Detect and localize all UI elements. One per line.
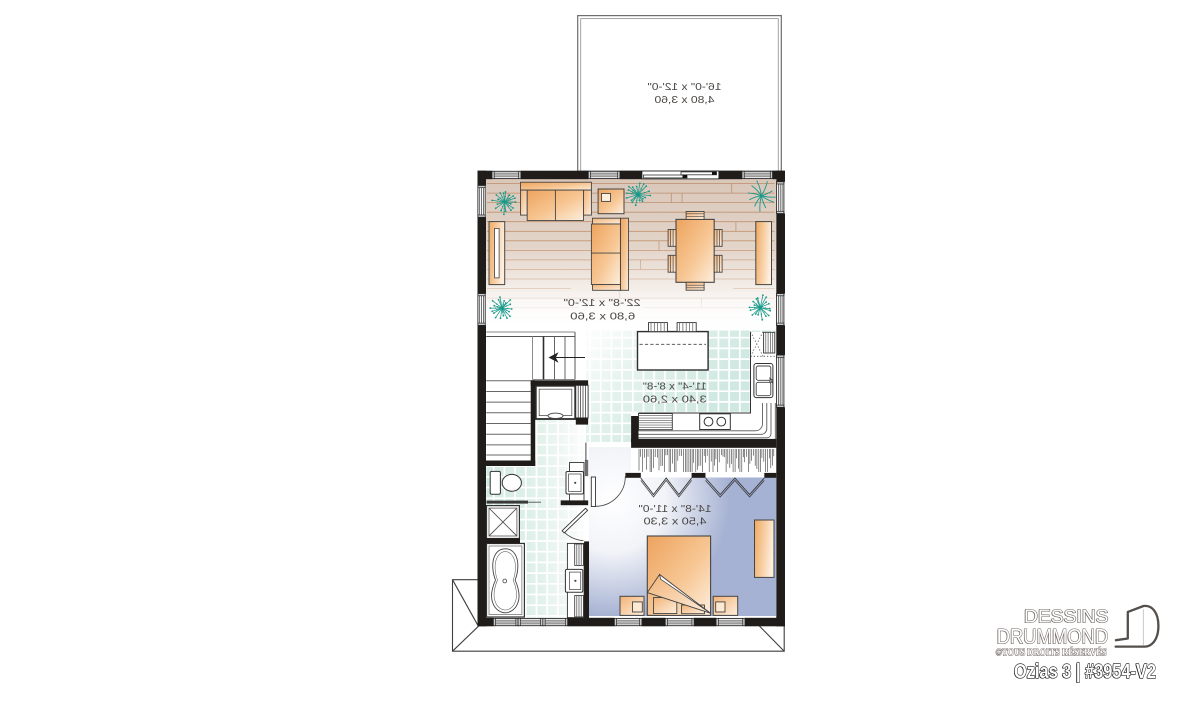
svg-text:Ozias 3 | #3954-V2: Ozias 3 | #3954-V2 [1014, 661, 1156, 683]
svg-text:6,80 x 3,60: 6,80 x 3,60 [570, 311, 635, 322]
svg-text:3,40 x 2,60: 3,40 x 2,60 [642, 395, 706, 406]
svg-text:DRUMMOND: DRUMMOND [997, 624, 1109, 648]
svg-text:©TOUS DROITS RÉSERVÉS: ©TOUS DROITS RÉSERVÉS [996, 647, 1107, 659]
svg-text:22'-8" x 12'-0": 22'-8" x 12'-0" [563, 298, 640, 309]
svg-text:14'-8" x 11'-0": 14'-8" x 11'-0" [638, 504, 711, 515]
svg-text:11'-4" x 8'-8": 11'-4" x 8'-8" [642, 381, 706, 392]
svg-text:4,50 x 3,30: 4,50 x 3,30 [643, 517, 706, 528]
svg-text:16'-0" x 12'-0": 16'-0" x 12'-0" [647, 82, 721, 93]
svg-text:4,80 x 3,60: 4,80 x 3,60 [654, 95, 714, 106]
svg-text:DESSINS: DESSINS [1024, 606, 1109, 626]
